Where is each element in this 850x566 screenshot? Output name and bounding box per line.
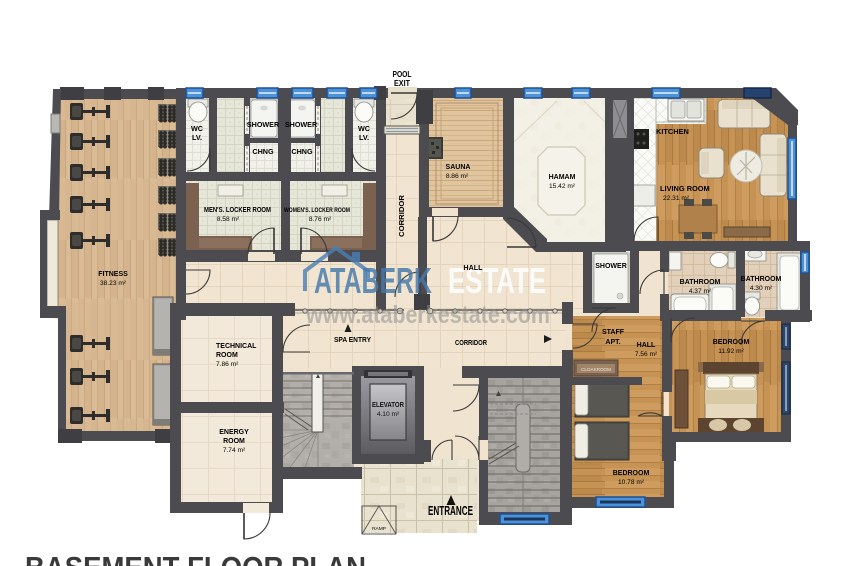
svg-text:7.86 m²: 7.86 m²: [216, 361, 239, 368]
svg-text:EXIT: EXIT: [394, 79, 410, 88]
svg-text:8.86 m²: 8.86 m²: [446, 173, 469, 180]
svg-text:ENTRANCE: ENTRANCE: [428, 504, 473, 518]
svg-text:APT.: APT.: [605, 339, 620, 346]
svg-text:BATHROOM: BATHROOM: [741, 276, 782, 283]
svg-text:WOMEN'S. LOCKER ROOM: WOMEN'S. LOCKER ROOM: [284, 207, 350, 214]
svg-text:SAUNA: SAUNA: [446, 164, 471, 171]
svg-text:CHNG: CHNG: [291, 147, 313, 156]
svg-text:LV.: LV.: [192, 133, 202, 142]
svg-text:BEDROOM: BEDROOM: [613, 470, 650, 477]
svg-text:ELEVATOR: ELEVATOR: [372, 402, 404, 409]
svg-text:22.31 m²: 22.31 m²: [663, 195, 690, 202]
svg-text:CHNG: CHNG: [252, 147, 274, 156]
svg-text:SHOWER: SHOWER: [247, 120, 280, 129]
svg-text:4.37 m²: 4.37 m²: [689, 288, 712, 295]
svg-text:TECHNICAL: TECHNICAL: [216, 343, 257, 350]
svg-text:7.74 m²: 7.74 m²: [223, 447, 246, 454]
svg-text:SHOWER: SHOWER: [285, 120, 318, 129]
svg-text:15.42 m²: 15.42 m²: [549, 183, 576, 190]
svg-text:STAFF: STAFF: [602, 329, 625, 336]
svg-text:4.10 m²: 4.10 m²: [377, 411, 400, 418]
svg-text:BATHROOM: BATHROOM: [680, 279, 721, 286]
svg-text:MEN'S. LOCKER ROOM: MEN'S. LOCKER ROOM: [204, 207, 271, 214]
svg-text:ROOM: ROOM: [216, 352, 238, 359]
svg-text:FITNESS: FITNESS: [98, 271, 128, 278]
svg-text:www.ataberkestate.com: www.ataberkestate.com: [305, 301, 550, 329]
svg-text:LV.: LV.: [359, 133, 369, 142]
svg-text:CORRIDOR: CORRIDOR: [397, 194, 406, 237]
svg-text:ATABERK: ATABERK: [314, 260, 432, 301]
svg-text:SHOWER: SHOWER: [595, 263, 627, 270]
svg-text:BASEMENT FLOOR PLAN: BASEMENT FLOOR PLAN: [25, 550, 366, 566]
svg-text:HAMAM: HAMAM: [549, 174, 576, 181]
svg-text:CLOAKROOM: CLOAKROOM: [581, 367, 611, 372]
svg-text:LIVING ROOM: LIVING ROOM: [660, 184, 710, 193]
svg-text:POOL: POOL: [393, 70, 412, 79]
svg-text:7.56 m²: 7.56 m²: [635, 351, 658, 358]
svg-text:8.58 m²: 8.58 m²: [217, 216, 240, 223]
svg-text:HALL: HALL: [463, 263, 483, 272]
svg-text:SPA ENTRY: SPA ENTRY: [334, 335, 371, 344]
svg-text:RAMP: RAMP: [372, 526, 386, 532]
svg-text:BEDROOM: BEDROOM: [713, 339, 750, 346]
svg-text:38.23 m²: 38.23 m²: [100, 280, 127, 287]
svg-text:4.30 m²: 4.30 m²: [750, 285, 773, 292]
svg-text:HALL: HALL: [637, 342, 656, 349]
svg-text:ENERGY: ENERGY: [219, 429, 249, 436]
svg-text:WC: WC: [191, 124, 203, 133]
svg-text:ROOM: ROOM: [223, 438, 245, 445]
svg-text:KITCHEN: KITCHEN: [656, 127, 689, 136]
svg-text:11.92 m²: 11.92 m²: [718, 348, 744, 355]
svg-text:WC: WC: [358, 124, 370, 133]
svg-text:8.76 m²: 8.76 m²: [309, 216, 332, 223]
svg-text:10.78 m²: 10.78 m²: [618, 479, 645, 486]
svg-text:CORRIDOR: CORRIDOR: [455, 338, 488, 347]
